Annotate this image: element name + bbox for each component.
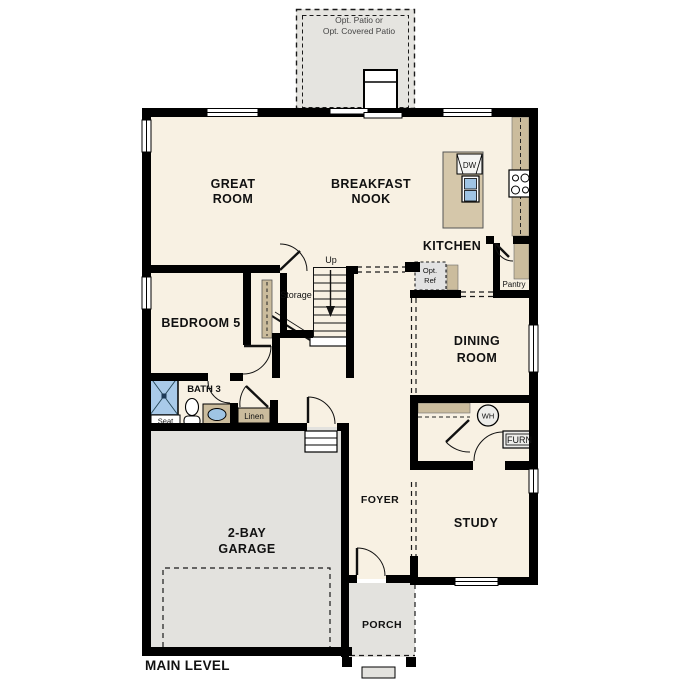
porch-step	[362, 667, 395, 678]
window	[142, 120, 151, 152]
breakfast-nook-label-line1: BREAKFAST	[331, 177, 411, 191]
closet-shelf	[418, 403, 470, 413]
window	[207, 109, 258, 117]
dining-room-label-line2: ROOM	[457, 351, 498, 365]
window	[529, 325, 538, 372]
bedroom5-closet	[262, 280, 272, 338]
pantry-shelf	[514, 243, 529, 279]
kitchen-label: KITCHEN	[423, 239, 481, 253]
porch-post	[342, 657, 352, 667]
pantry-label: Pantry	[502, 280, 525, 289]
great-room-label-line1: GREAT	[211, 177, 256, 191]
linen-label: Linen	[244, 412, 264, 421]
opt-ref-label-line2: Ref	[424, 276, 437, 285]
stove-icon	[509, 170, 532, 197]
toilet-icon	[184, 399, 200, 427]
seat-label: Seat	[158, 417, 174, 426]
dishwasher-label: DW	[463, 161, 477, 170]
window	[142, 277, 151, 309]
study-label: STUDY	[454, 516, 499, 530]
great-room-label-line2: ROOM	[213, 192, 254, 206]
floor-plan: Opt. Patio or Opt. Covered Patio GREAT R…	[0, 0, 687, 687]
porch-post	[406, 657, 416, 667]
garage-label-line1: 2-BAY	[228, 526, 267, 540]
storage-label: Storage	[280, 290, 312, 300]
water-heater-label: WH	[482, 412, 495, 421]
dining-room-label-line1: DINING	[454, 334, 500, 348]
furnace-label: FURN	[507, 435, 532, 445]
vanity-sink-icon	[203, 404, 231, 425]
garage-label-line2: GARAGE	[218, 542, 275, 556]
patio-label-line2: Opt. Covered Patio	[323, 26, 396, 36]
window	[529, 469, 538, 493]
bath3-label: BATH 3	[187, 384, 221, 395]
bedroom5-label: BEDROOM 5	[161, 316, 240, 330]
plan-title: MAIN LEVEL	[145, 658, 230, 673]
counter-stub	[447, 265, 458, 290]
window	[443, 109, 492, 117]
up-label: Up	[325, 255, 337, 265]
porch-label: PORCH	[362, 619, 402, 631]
window	[455, 578, 498, 586]
opt-ref-label-line1: Opt.	[423, 266, 437, 275]
floor-plan-svg: Opt. Patio or Opt. Covered Patio GREAT R…	[0, 0, 687, 687]
shower-icon	[150, 377, 178, 415]
kitchen-sink-icon	[462, 176, 479, 202]
fireplace	[364, 70, 397, 110]
patio-label-line1: Opt. Patio or	[335, 15, 383, 25]
foyer-label: FOYER	[361, 494, 399, 506]
breakfast-nook-label-line2: NOOK	[351, 192, 390, 206]
garage-entry-steps	[305, 431, 337, 452]
